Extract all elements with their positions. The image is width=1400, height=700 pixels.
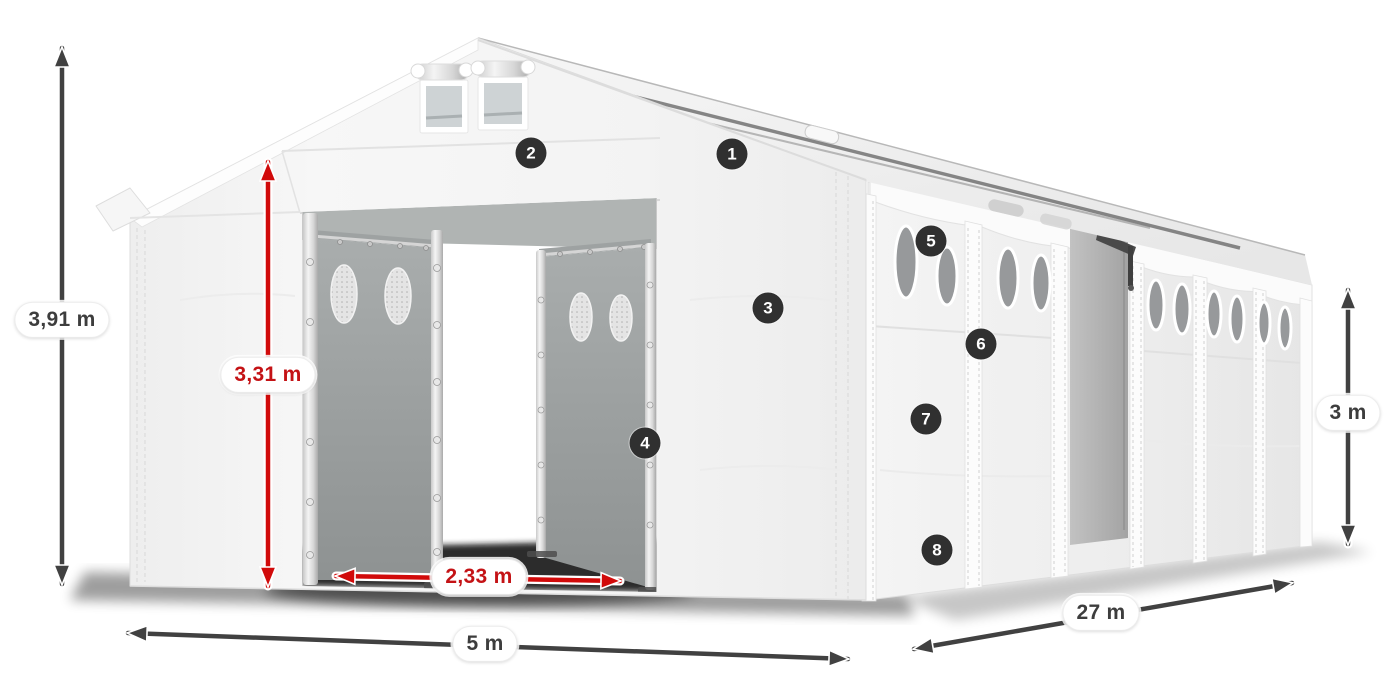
callout-badge-7: 7 bbox=[911, 404, 942, 435]
tent-dimension-diagram: 3,91 m 3,31 m 2,33 m 5 m 27 m 3 m 1 2 3 … bbox=[0, 0, 1400, 700]
entrance bbox=[292, 190, 668, 600]
dimension-label-door-height: 3,31 m bbox=[220, 357, 315, 393]
gable-window-left bbox=[411, 63, 473, 133]
door-panel-left bbox=[312, 230, 436, 580]
callout-badge-5: 5 bbox=[916, 226, 947, 257]
callout-badge-2: 2 bbox=[516, 138, 547, 169]
callout-badge-8: 8 bbox=[922, 535, 953, 566]
callout-badge-1: 1 bbox=[717, 139, 748, 170]
dimension-label-wall-height: 3 m bbox=[1315, 395, 1380, 431]
gable-window-right bbox=[471, 60, 535, 130]
callout-badge-4: 4 bbox=[630, 428, 661, 459]
dimension-label-width: 5 m bbox=[452, 626, 517, 662]
callout-badge-3: 3 bbox=[753, 293, 784, 324]
side-door-opening bbox=[1070, 226, 1136, 545]
tent-illustration bbox=[0, 0, 1400, 700]
callout-badge-6: 6 bbox=[966, 329, 997, 360]
door-panel-right bbox=[539, 239, 651, 588]
dimension-label-door-width: 2,33 m bbox=[431, 559, 526, 595]
dimension-label-length: 27 m bbox=[1062, 595, 1139, 631]
dimension-label-height-total: 3,91 m bbox=[14, 302, 109, 338]
